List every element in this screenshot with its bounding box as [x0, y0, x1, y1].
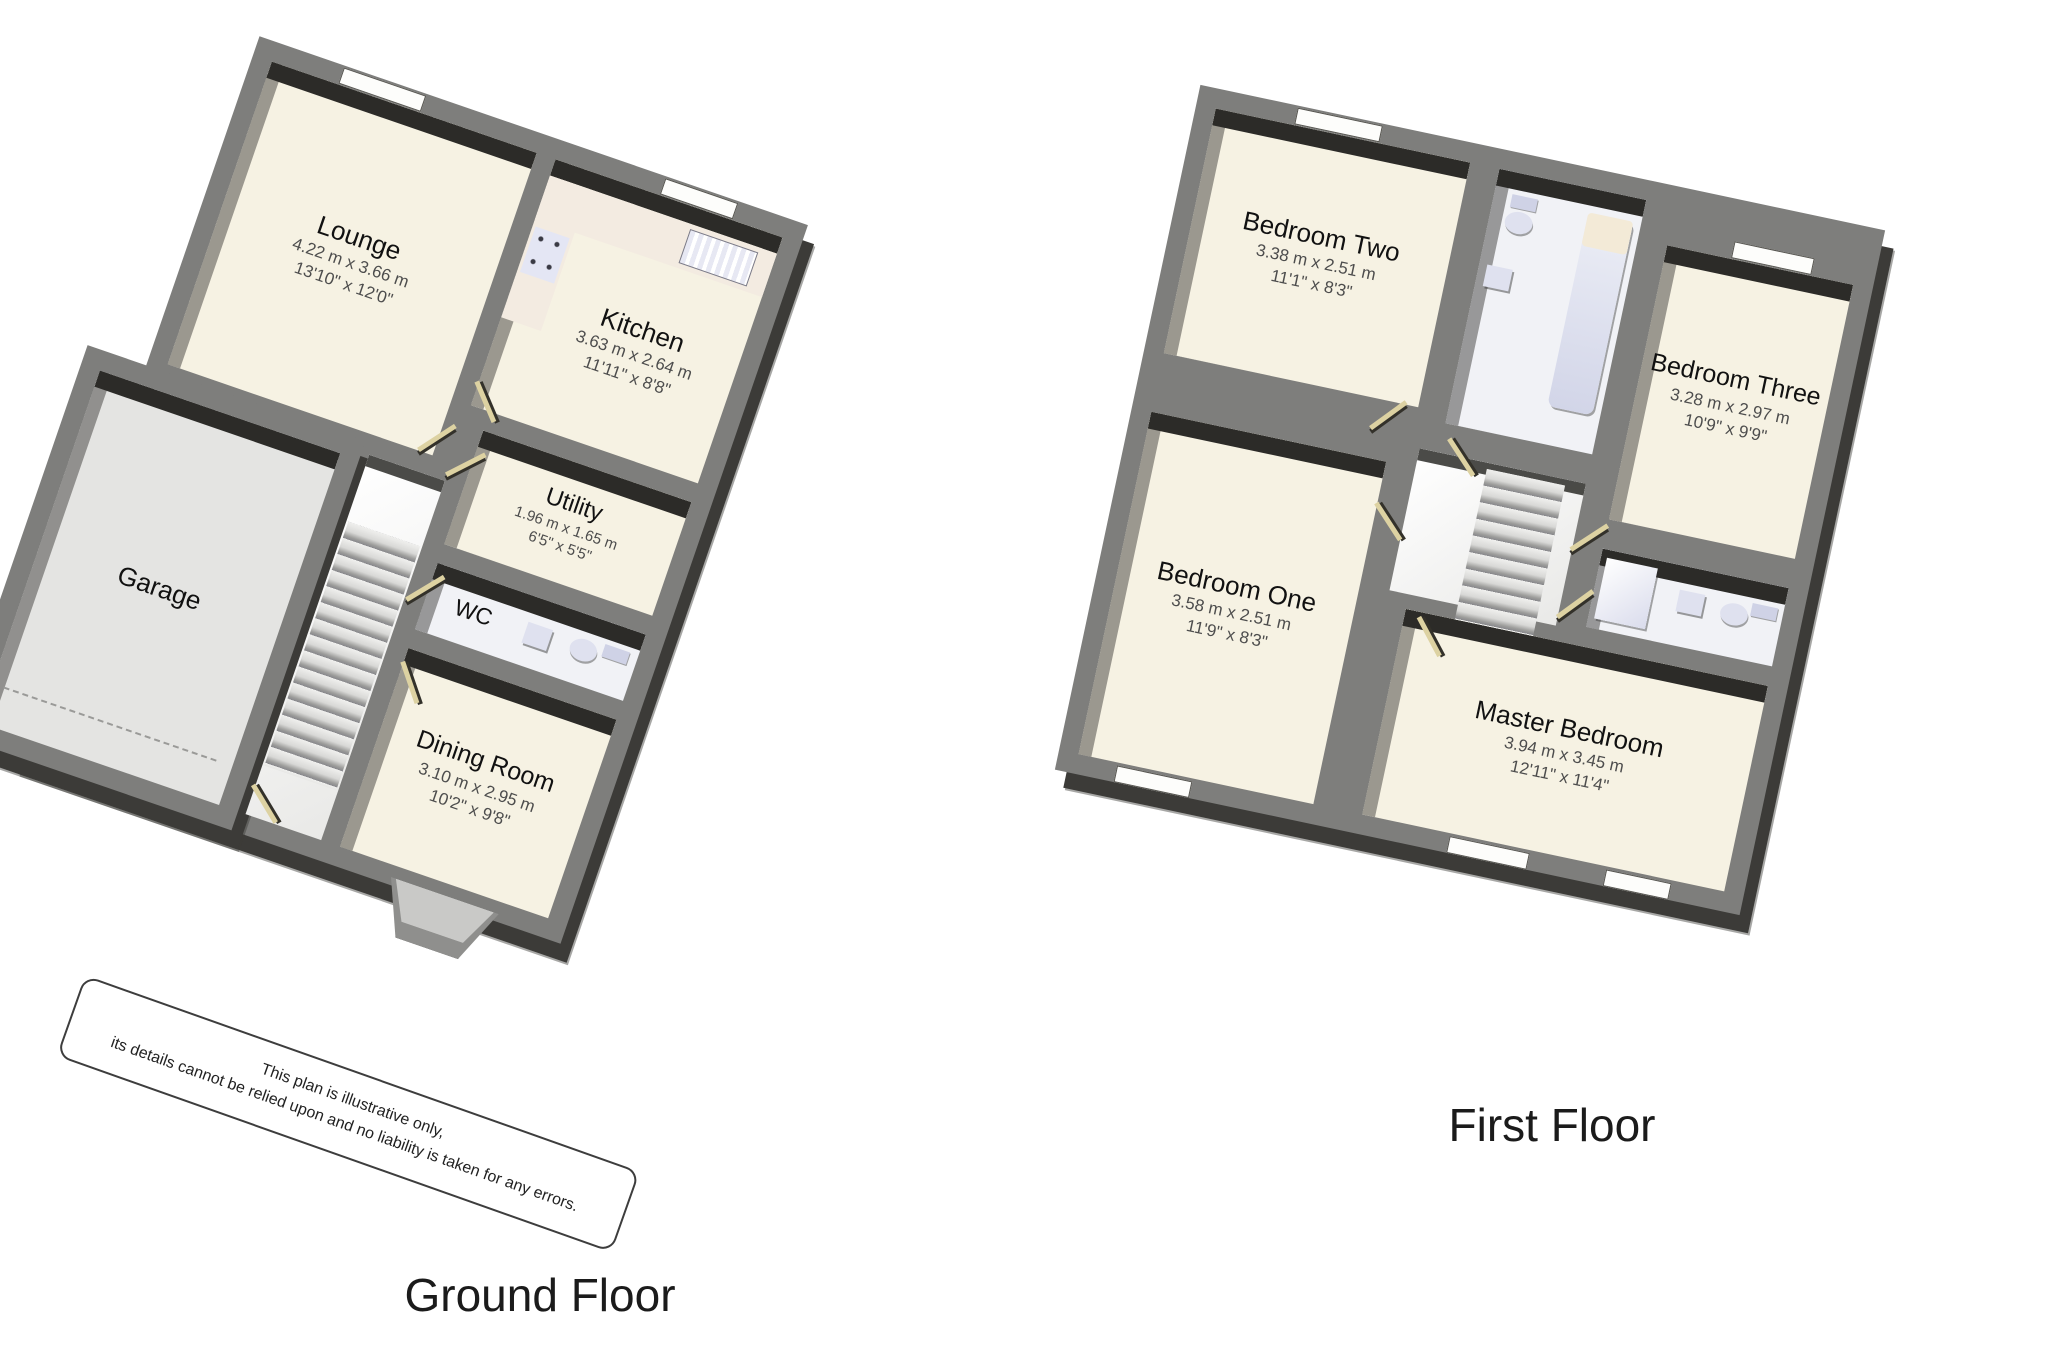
room-name: Bedroom Two [1240, 204, 1403, 269]
room-name: Kitchen [596, 300, 689, 359]
disclaimer-line-2: its details cannot be relied upon and no… [107, 1031, 581, 1219]
sink-icon [521, 622, 553, 651]
room-dimensions-imperial: 10'9" x 9'9" [1682, 409, 1769, 448]
ground-floor-plan: Lounge 4.22 m x 3.66 m 13'10" x 12'0" Ki… [12, 36, 808, 943]
room-dimensions-imperial: 11'9" x 8'3" [1184, 615, 1269, 654]
room-name: Lounge [313, 208, 406, 267]
room-name: Dining Room [412, 724, 559, 801]
room-dimensions-metric: 3.28 m x 2.97 m [1668, 383, 1792, 430]
toilet-icon [1503, 209, 1535, 236]
room-dimensions-metric: 3.63 m x 2.64 m [573, 325, 695, 386]
bedroom-two-label: Bedroom Two 3.38 m x 2.51 m 11'1" x 8'3" [1164, 109, 1470, 408]
room-name: Utility [542, 481, 607, 528]
first-floor-title: First Floor [1449, 1098, 1656, 1152]
room-dimensions-imperial: 10'2" x 9'8" [426, 784, 512, 832]
ground-floor-title: Ground Floor [404, 1268, 675, 1322]
first-floor-plan: Bedroom Two 3.38 m x 2.51 m 11'1" x 8'3"… [1055, 85, 1885, 915]
room-name: Garage [113, 558, 206, 617]
room-dimensions-metric: 3.94 m x 3.45 m [1502, 732, 1626, 779]
room-dimensions-imperial: 6'5" x 5'5" [526, 527, 594, 567]
room-dimensions-metric: 3.58 m x 2.51 m [1169, 590, 1293, 637]
room-name: Bedroom Three [1648, 347, 1824, 414]
room-bedroom-two: Bedroom Two 3.38 m x 2.51 m 11'1" x 8'3" [1164, 109, 1470, 408]
sink-icon [1483, 264, 1513, 291]
toilet-icon [1718, 601, 1750, 628]
room-dimensions-imperial: 13'10" x 12'0" [291, 257, 395, 311]
room-name: WC [451, 593, 497, 633]
shower-icon [1594, 558, 1658, 629]
room-dimensions-imperial: 12'11" x 11'4" [1508, 756, 1611, 798]
room-dimensions-metric: 4.22 m x 3.66 m [289, 233, 411, 294]
toilet-icon [601, 644, 630, 665]
room-dimensions-metric: 3.10 m x 2.95 m [416, 757, 538, 818]
disclaimer-note: This plan is illustrative only, its deta… [56, 975, 640, 1253]
toilet-icon [1510, 194, 1538, 212]
toilet-icon [1750, 603, 1778, 621]
room-name: Bedroom One [1154, 554, 1319, 619]
sink-icon [1675, 590, 1705, 617]
room-dimensions-imperial: 11'11" x 8'8" [580, 351, 673, 401]
room-dimensions-imperial: 11'1" x 8'3" [1269, 265, 1354, 304]
room-name: Master Bedroom [1472, 693, 1667, 765]
room-dimensions-metric: 1.96 m x 1.65 m [512, 501, 620, 554]
room-dimensions-metric: 3.38 m x 2.51 m [1254, 240, 1378, 287]
toilet-icon [566, 635, 600, 665]
